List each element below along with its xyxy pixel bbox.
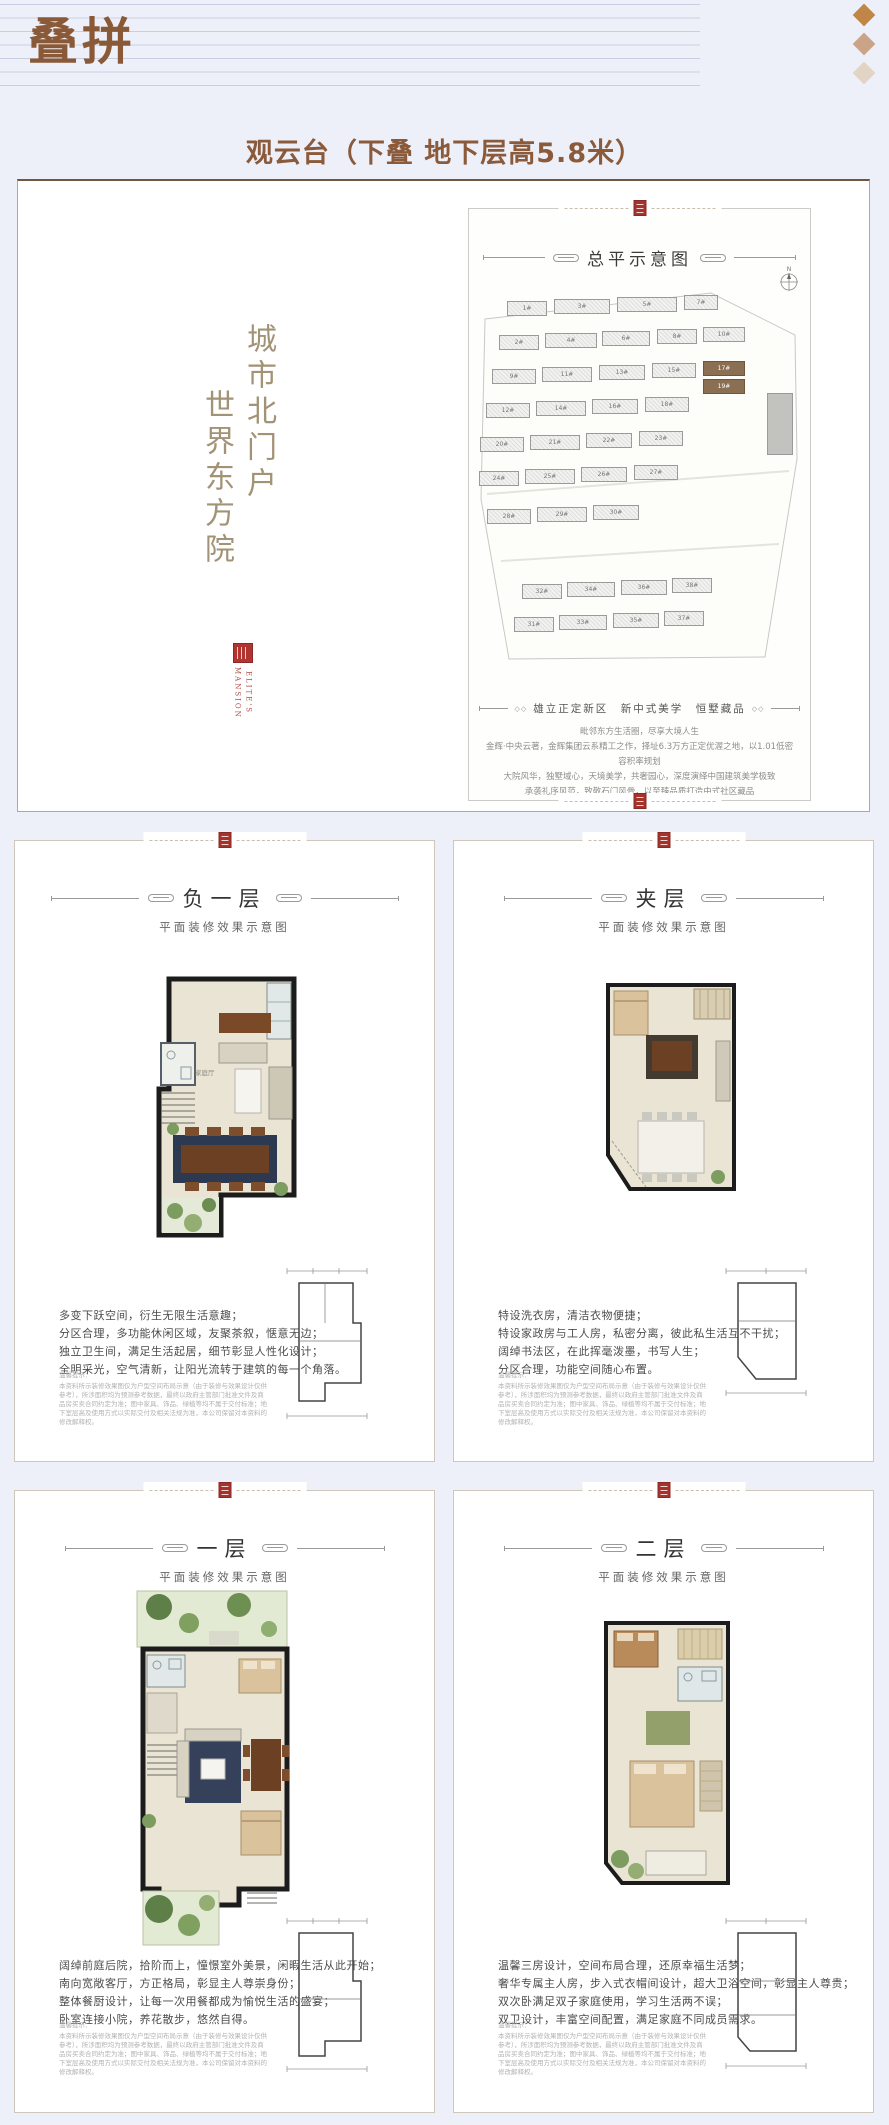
building-block: 1# bbox=[507, 301, 547, 316]
hero-card: 城市北门户 世界东方院 MANSION ELITE'S 总平示意图 bbox=[17, 179, 870, 812]
panel-tagline-row: ◇◇ 雄立正定新区 新中式美学 恒墅藏品 ◇◇ bbox=[479, 701, 800, 716]
panel-bottom-seal bbox=[558, 793, 721, 809]
disclaimer-text: 本资料所示装修效果图仅为户型空间布局示意（由于装修与效果设计仅供参考），所涉面积… bbox=[59, 1382, 267, 1426]
flourish-line bbox=[771, 708, 800, 709]
flourish-line bbox=[311, 898, 399, 899]
diamond-icon bbox=[853, 33, 876, 56]
panel-top-seal bbox=[558, 200, 721, 216]
building-block: 6# bbox=[602, 331, 650, 346]
brand-seal-icon bbox=[233, 643, 253, 663]
siteplan-title-row: 总平示意图 bbox=[469, 245, 810, 270]
keyplan-outline bbox=[716, 1261, 816, 1426]
dash-decoration bbox=[651, 208, 715, 209]
building-block: 15# bbox=[652, 363, 696, 378]
red-seal-icon bbox=[218, 832, 231, 848]
building-block: 12# bbox=[486, 403, 530, 418]
svg-text:家庭厅: 家庭厅 bbox=[195, 1068, 215, 1077]
flourish-ornament bbox=[553, 254, 579, 262]
building-block: 25# bbox=[525, 469, 575, 484]
flourish-line bbox=[65, 1548, 153, 1549]
page: 叠拼 观云台（下叠 地下层高5.8米） 城市北门户 世界东方院 MANSION … bbox=[0, 0, 889, 2125]
brand-logo: MANSION ELITE'S bbox=[223, 643, 263, 719]
building-block: 10# bbox=[703, 327, 745, 342]
disclaimer-title: 温馨提示： bbox=[498, 2021, 708, 2030]
flourish-ornament bbox=[262, 1544, 288, 1552]
building-block: 26# bbox=[581, 467, 627, 482]
flourish-line bbox=[736, 1548, 824, 1549]
vertical-slogan: 城市北门户 世界东方院 bbox=[194, 323, 286, 623]
building-block: 11# bbox=[542, 367, 592, 382]
building-block: 22# bbox=[586, 433, 632, 448]
diamond-icon bbox=[853, 62, 876, 85]
building-block: 5# bbox=[617, 297, 677, 312]
building-block: 18# bbox=[645, 397, 689, 412]
brand-word-mansion: MANSION bbox=[234, 667, 242, 719]
dash-decoration bbox=[588, 840, 652, 841]
panel-paragraph: 毗邻东方生活圈，尽享大境人生 金辉·中央云著，金辉集团云系精工之作，择址6.3万… bbox=[483, 725, 796, 800]
flourish-ornament bbox=[148, 894, 174, 902]
flourish-line bbox=[734, 257, 796, 258]
page-subtitle: 观云台（下叠 地下层高5.8米） bbox=[0, 131, 889, 170]
building-block: 13# bbox=[599, 365, 645, 380]
floorplan-drawing-second bbox=[586, 1611, 746, 1910]
building-block: 14# bbox=[536, 401, 586, 416]
building-block: 35# bbox=[613, 613, 659, 628]
building-block: 33# bbox=[559, 615, 607, 630]
building-block: 23# bbox=[639, 431, 683, 446]
flourish-ornament bbox=[162, 1544, 188, 1552]
flourish-ornament bbox=[601, 1544, 627, 1552]
building-block: 2# bbox=[499, 335, 539, 350]
diamond-icon bbox=[853, 4, 876, 27]
building-block: 36# bbox=[621, 580, 667, 595]
flourish-ornament bbox=[701, 894, 727, 902]
floor-subtitle: 平面装修效果示意图 bbox=[454, 919, 873, 935]
floor-disclaimer: 温馨提示： 本资料所示装修效果图仅为户型空间布局示意（由于装修与效果设计仅供参考… bbox=[59, 2021, 269, 2077]
flourish-line bbox=[297, 1548, 385, 1549]
floor-subtitle: 平面装修效果示意图 bbox=[15, 1569, 434, 1585]
floorplan-card-basement: 负一层 平面装修效果示意图 bbox=[14, 840, 435, 1462]
siteplan-panel: 总平示意图 N 1#3#5#7#2#4#6 bbox=[468, 208, 811, 801]
building-block: 21# bbox=[530, 435, 580, 450]
panel-paragraph-line: 大院风华，独墅域心，天境美学，共奢园心，深度演绎中国建筑美学极致 bbox=[483, 770, 796, 785]
red-seal-icon bbox=[633, 200, 646, 216]
building-block: 29# bbox=[537, 507, 587, 522]
dash-decoration bbox=[149, 840, 213, 841]
flourish-line bbox=[504, 898, 592, 899]
dash-decoration bbox=[564, 801, 628, 802]
flourish-line bbox=[504, 1548, 592, 1549]
diamond-cluster-icon: ◇◇ bbox=[514, 705, 527, 713]
floor-title-mezzanine: 夹层 bbox=[636, 883, 692, 913]
floorplan-drawing-basement: 家庭厅 bbox=[109, 939, 319, 1247]
floor-title-second: 二层 bbox=[636, 1533, 692, 1563]
keyplan-outline bbox=[716, 1911, 816, 2076]
siteplan-title: 总平示意图 bbox=[587, 245, 692, 270]
red-seal-icon bbox=[633, 793, 646, 809]
building-block: 4# bbox=[545, 333, 597, 348]
siteplan-drawing: 1#3#5#7#2#4#6#8#10#9#11#13#15#17#12#14#1… bbox=[479, 289, 800, 661]
dash-decoration bbox=[651, 801, 715, 802]
flourish-line bbox=[479, 708, 508, 709]
diamond-cluster-icon: ◇◇ bbox=[752, 705, 765, 713]
building-block: 27# bbox=[634, 465, 678, 480]
flourish-ornament bbox=[700, 254, 726, 262]
building-block: 38# bbox=[672, 578, 712, 593]
panel-paragraph-line: 金辉·中央云著，金辉集团云系精工之作，择址6.3万方正定优渥之地，以1.01低密… bbox=[483, 740, 796, 770]
dash-decoration bbox=[675, 1490, 739, 1491]
disclaimer-title: 温馨提示： bbox=[59, 2021, 269, 2030]
flourish-ornament bbox=[601, 894, 627, 902]
building-block: 28# bbox=[487, 509, 531, 524]
floorplan-drawing-mezzanine bbox=[586, 971, 743, 1233]
building-block: 24# bbox=[479, 471, 519, 486]
dash-decoration bbox=[675, 840, 739, 841]
keyplan-outline bbox=[277, 1911, 377, 2076]
dash-decoration bbox=[564, 208, 628, 209]
building-block bbox=[767, 393, 793, 455]
red-seal-icon bbox=[657, 1482, 670, 1498]
panel-tagline: 雄立正定新区 新中式美学 恒墅藏品 bbox=[533, 701, 746, 716]
red-seal-icon bbox=[657, 832, 670, 848]
vertical-slogan-line-1: 城市北门户 bbox=[236, 323, 280, 503]
dash-decoration bbox=[149, 1490, 213, 1491]
floor-disclaimer: 温馨提示： 本资料所示装修效果图仅为户型空间布局示意（由于装修与效果设计仅供参考… bbox=[59, 1371, 269, 1427]
flourish-line bbox=[483, 257, 545, 258]
red-seal-icon bbox=[218, 1482, 231, 1498]
flourish-ornament bbox=[276, 894, 302, 902]
disclaimer-text: 本资料所示装修效果图仅为户型空间布局示意（由于装修与效果设计仅供参考），所涉面积… bbox=[59, 2032, 267, 2076]
building-block: 9# bbox=[492, 369, 536, 384]
flourish-ornament bbox=[701, 1544, 727, 1552]
building-block: 7# bbox=[684, 295, 718, 310]
building-block: 16# bbox=[592, 399, 638, 414]
floor-subtitle: 平面装修效果示意图 bbox=[15, 919, 434, 935]
floor-title-first: 一层 bbox=[197, 1533, 253, 1563]
building-block: 30# bbox=[593, 505, 639, 520]
floor-subtitle: 平面装修效果示意图 bbox=[454, 1569, 873, 1585]
dash-decoration bbox=[236, 1490, 300, 1491]
flourish-line bbox=[51, 898, 139, 899]
panel-paragraph-line: 毗邻东方生活圈，尽享大境人生 bbox=[483, 725, 796, 740]
dash-decoration bbox=[236, 840, 300, 841]
page-title: 叠拼 bbox=[28, 2, 136, 74]
floor-disclaimer: 温馨提示： 本资料所示装修效果图仅为户型空间布局示意（由于装修与效果设计仅供参考… bbox=[498, 1371, 708, 1427]
floorplan-card-first-floor: 一层 平面装修效果示意图 bbox=[14, 1490, 435, 2113]
brand-word-elites: ELITE'S bbox=[245, 667, 253, 719]
svg-text:N: N bbox=[787, 266, 792, 273]
disclaimer-text: 本资料所示装修效果图仅为户型空间布局示意（由于装修与效果设计仅供参考），所涉面积… bbox=[498, 1382, 706, 1426]
building-block: 8# bbox=[657, 329, 697, 344]
floor-title-basement: 负一层 bbox=[183, 883, 267, 913]
keyplan-outline bbox=[277, 1261, 377, 1426]
floorplan-card-mezzanine: 夹层 平面装修效果示意图 bbox=[453, 840, 874, 1462]
dash-decoration bbox=[588, 1490, 652, 1491]
building-block: 34# bbox=[567, 582, 615, 597]
flourish-line bbox=[736, 898, 824, 899]
disclaimer-title: 温馨提示： bbox=[498, 1371, 708, 1380]
building-block: 20# bbox=[480, 437, 524, 452]
building-block: 3# bbox=[554, 299, 610, 314]
building-block: 19# bbox=[703, 379, 745, 394]
floor-disclaimer: 温馨提示： 本资料所示装修效果图仅为户型空间布局示意（由于装修与效果设计仅供参考… bbox=[498, 2021, 708, 2077]
disclaimer-title: 温馨提示： bbox=[59, 1371, 269, 1380]
floorplan-drawing-first bbox=[119, 1589, 306, 1955]
disclaimer-text: 本资料所示装修效果图仅为户型空间布局示意（由于装修与效果设计仅供参考），所涉面积… bbox=[498, 2032, 706, 2076]
floorplan-card-second-floor: 二层 平面装修效果示意图 bbox=[453, 1490, 874, 2113]
building-block: 37# bbox=[664, 611, 704, 626]
vertical-slogan-line-2: 世界东方院 bbox=[194, 389, 238, 569]
building-block: 32# bbox=[522, 584, 562, 599]
building-block: 17# bbox=[703, 361, 745, 376]
building-block: 31# bbox=[514, 617, 554, 632]
